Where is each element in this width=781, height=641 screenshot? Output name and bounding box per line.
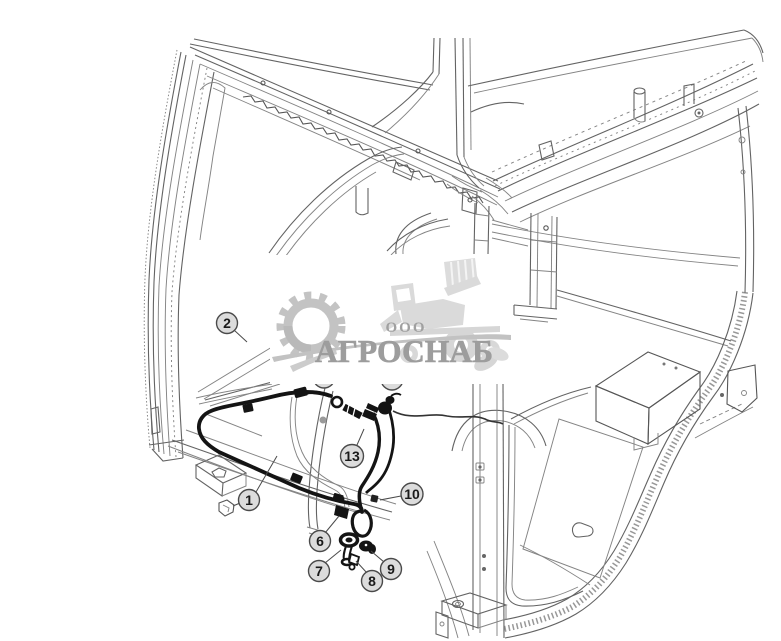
svg-text:9: 9 (387, 561, 395, 577)
svg-text:8: 8 (368, 573, 376, 589)
svg-text:АГРОСНАБ: АГРОСНАБ (315, 333, 493, 369)
svg-text:1: 1 (245, 492, 253, 508)
svg-text:6: 6 (316, 533, 324, 549)
svg-text:2: 2 (223, 315, 231, 331)
svg-text:7: 7 (315, 563, 323, 579)
svg-text:10: 10 (404, 486, 420, 502)
svg-text:13: 13 (344, 448, 360, 464)
